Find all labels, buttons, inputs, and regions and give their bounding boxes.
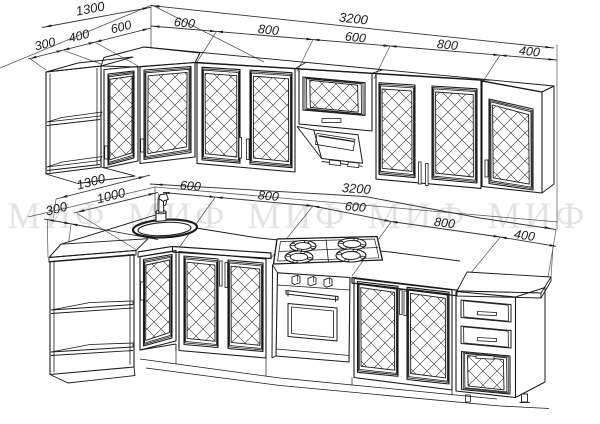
svg-text:800: 800 (257, 22, 279, 38)
svg-text:600: 600 (344, 29, 366, 45)
svg-text:400: 400 (513, 227, 536, 244)
svg-text:600: 600 (173, 15, 195, 31)
svg-text:800: 800 (433, 215, 455, 231)
svg-text:3200: 3200 (341, 180, 372, 197)
svg-text:800: 800 (257, 188, 279, 204)
svg-text:3200: 3200 (338, 10, 369, 28)
svg-text:600: 600 (344, 199, 366, 215)
svg-text:400: 400 (518, 43, 540, 59)
svg-text:600: 600 (179, 178, 201, 194)
svg-text:800: 800 (436, 37, 458, 53)
svg-text:МИФ: МИФ (488, 196, 589, 237)
